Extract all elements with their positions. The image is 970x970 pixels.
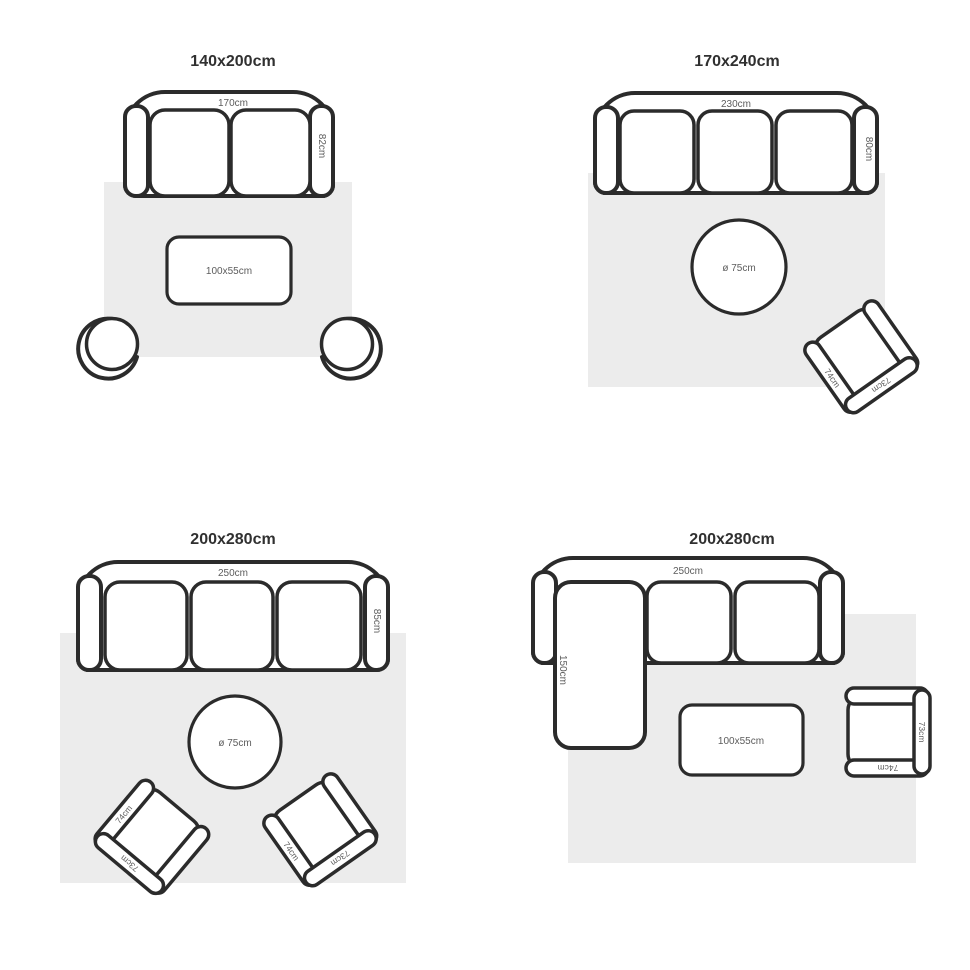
sofa-cushion	[698, 111, 772, 193]
round-table-size-label: ø 75cm	[722, 263, 755, 274]
layout-scene-140x200: 100x55cm 170cm 82cm	[0, 0, 485, 485]
armchair-width-label: 74cm	[878, 763, 899, 773]
sofa-width-label: 250cm	[673, 566, 703, 577]
sofa-cushion	[150, 110, 229, 196]
armchair: 74cm 73cm	[846, 688, 930, 776]
tub-chair	[322, 319, 381, 379]
sofa-cushion	[191, 582, 273, 670]
sofa-arm	[125, 106, 148, 196]
sofa-cushion	[231, 110, 310, 196]
sofa-cushion	[647, 582, 731, 663]
coffee-table-size-label: 100x55cm	[718, 736, 764, 747]
sofa-cushion	[277, 582, 361, 670]
sofa-3-seat: 250cm 85cm	[78, 562, 388, 670]
sofa-cushion	[620, 111, 694, 193]
layout-scene-200x280-a: ø 75cm 74cm 73cm 74cm 73cm	[0, 485, 485, 970]
sofa-width-label: 250cm	[218, 568, 248, 579]
sofa-width-label: 170cm	[218, 98, 248, 109]
sofa-arm	[533, 572, 556, 663]
sofa-3-seat: 230cm 80cm	[595, 93, 877, 193]
layout-option-140x200: 140x200cm 100x55cm	[0, 0, 485, 485]
sofa-cushion	[776, 111, 852, 193]
layout-option-200x280-a: 200x280cm ø 75cm 74cm 73cm	[0, 485, 485, 970]
sofa-depth-label: 85cm	[371, 609, 382, 633]
coffee-table-size-label: 100x55cm	[206, 266, 252, 277]
sofa-cushion	[105, 582, 187, 670]
coffee-table: 100x55cm	[680, 705, 803, 775]
layout-option-200x280-b: 200x280cm 100x55cm 74cm 73cm	[485, 485, 970, 970]
sofa-2-seat: 170cm 82cm	[125, 92, 333, 196]
sofa-chaise-depth-label: 150cm	[557, 655, 568, 685]
sofa-arm	[78, 576, 101, 670]
rug-size-guide: 140x200cm 100x55cm	[0, 0, 970, 970]
layout-option-170x240: 170x240cm ø 75cm 74cm 73cm	[485, 0, 970, 485]
round-table: ø 75cm	[692, 220, 786, 314]
sofa-arm	[595, 107, 618, 193]
coffee-table: 100x55cm	[167, 237, 291, 304]
sofa-width-label: 230cm	[721, 99, 751, 110]
tub-chair	[78, 319, 137, 379]
round-table-size-label: ø 75cm	[218, 738, 251, 749]
armchair-depth-label: 73cm	[917, 722, 927, 743]
sofa-depth-label: 82cm	[316, 134, 327, 158]
layout-scene-170x240: ø 75cm 74cm 73cm 230cm 80cm	[485, 0, 970, 485]
round-table: ø 75cm	[189, 696, 281, 788]
sofa-cushion	[735, 582, 819, 663]
sofa-arm	[820, 572, 843, 663]
layout-scene-200x280-b: 100x55cm 74cm 73cm 250cm 150cm	[485, 485, 970, 970]
sofa-depth-label: 80cm	[863, 137, 874, 161]
